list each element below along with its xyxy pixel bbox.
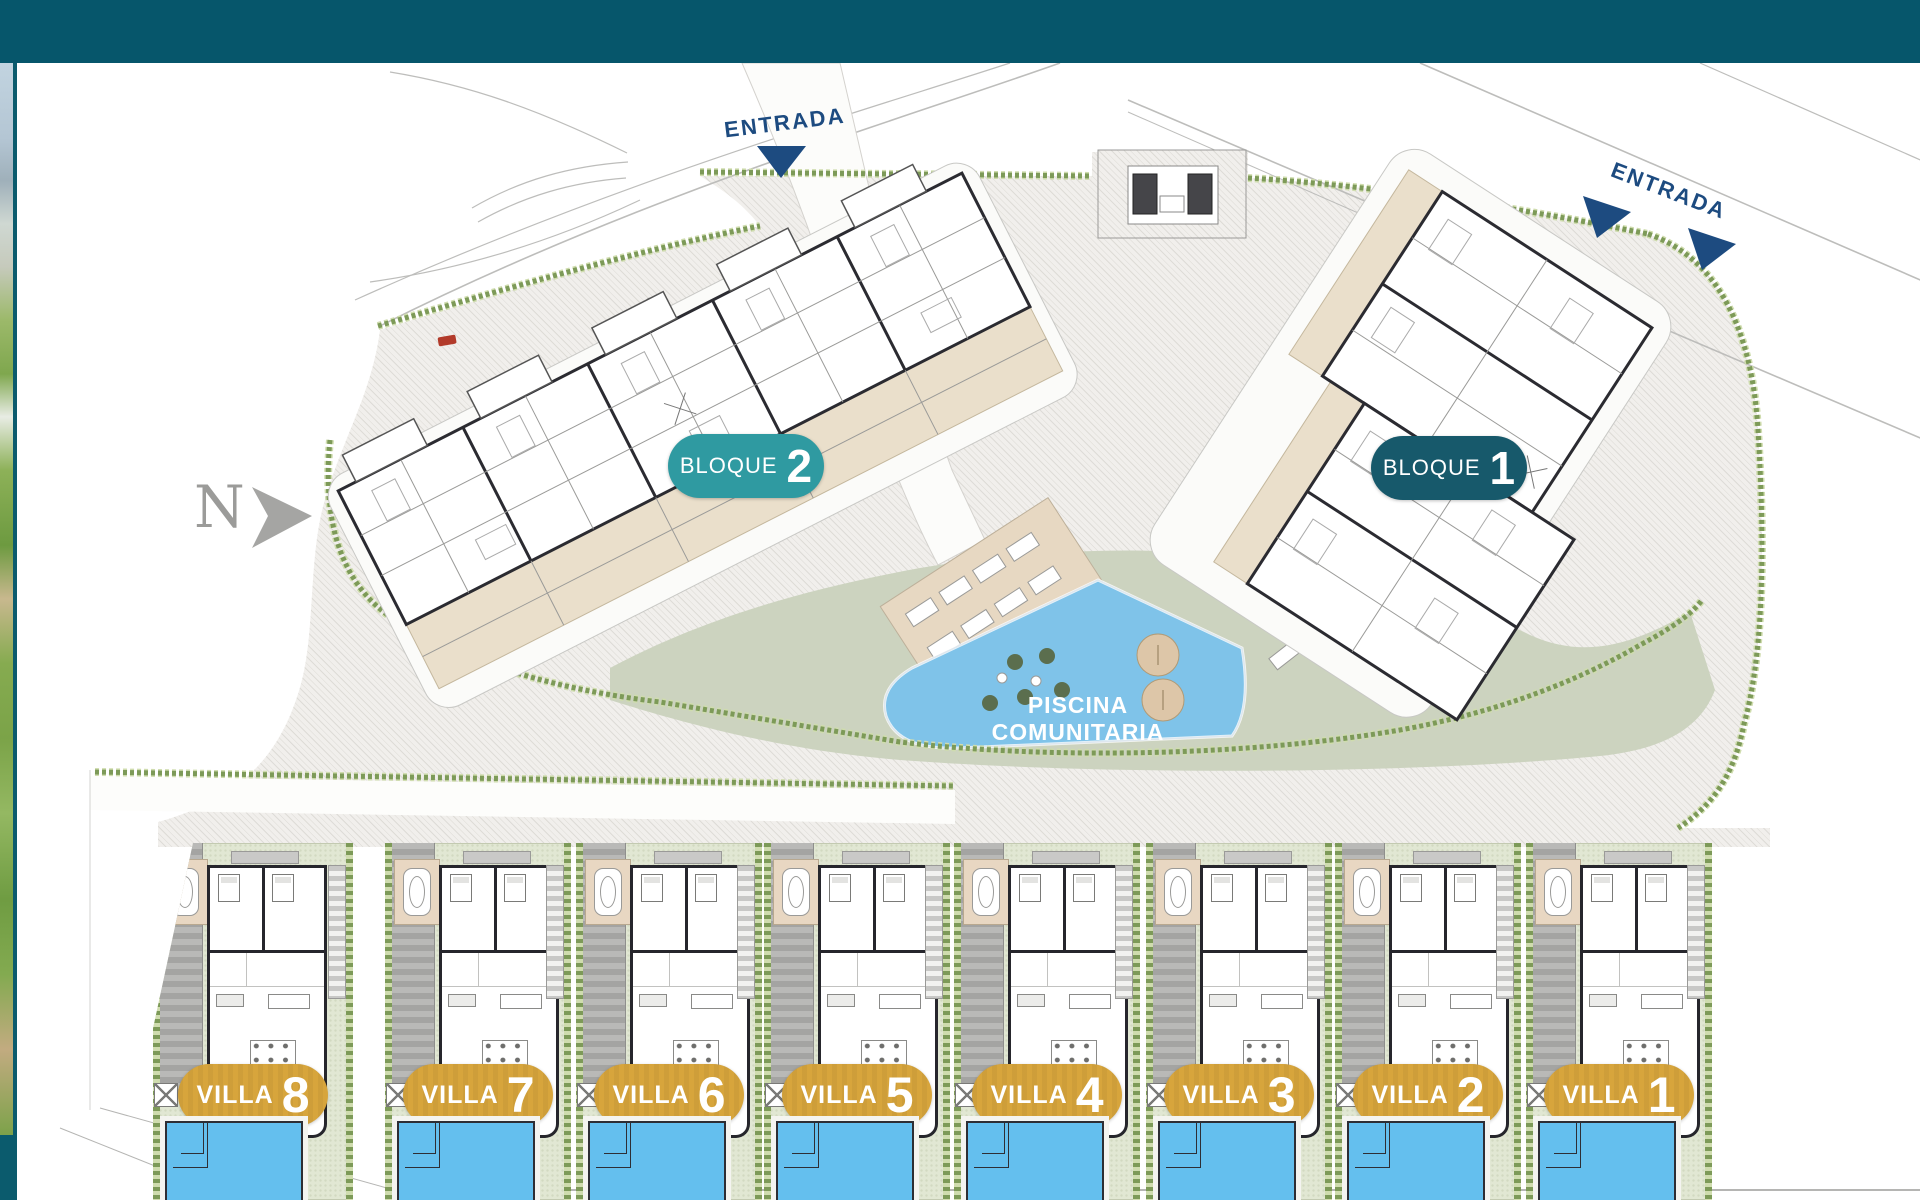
- outdoor-tub: [403, 868, 431, 916]
- wall: [1011, 950, 1125, 953]
- villa-pool: [1347, 1121, 1485, 1200]
- terrace-sofa: [463, 851, 531, 864]
- wall: [1444, 868, 1447, 950]
- partition-line: [1203, 986, 1317, 987]
- partition-line: [1392, 986, 1506, 987]
- outdoor-tub: [1164, 868, 1192, 916]
- villa-pool: [1158, 1121, 1296, 1200]
- outdoor-tub: [782, 868, 810, 916]
- kitchen-island-icon: [500, 994, 542, 1009]
- partition-line: [857, 953, 858, 987]
- bed-icon: [1454, 874, 1476, 902]
- villa-number: 8: [282, 1070, 310, 1120]
- side-steps: [546, 865, 564, 999]
- hedge-divider-left: [954, 843, 961, 1200]
- bloque-2-number: 2: [787, 443, 813, 489]
- bed-icon: [829, 874, 851, 902]
- wall: [210, 950, 324, 953]
- terrace-sofa: [1413, 851, 1481, 864]
- bloque-1-number: 1: [1490, 445, 1516, 491]
- villa-plot-3: VILLA 3: [1146, 843, 1332, 1200]
- hedge-divider-left: [576, 843, 583, 1200]
- sofa-icon: [639, 994, 667, 1007]
- hedge-divider-right: [755, 843, 762, 1200]
- sofa-icon: [1209, 994, 1237, 1007]
- villa-badge-7[interactable]: VILLA 7: [403, 1064, 553, 1126]
- hedge-divider-left: [1146, 843, 1153, 1200]
- hedge-divider-left: [385, 843, 392, 1200]
- hedge-divider-left: [1526, 843, 1533, 1200]
- hedge-divider-right: [564, 843, 571, 1200]
- hedge-divider-right: [346, 843, 353, 1200]
- partition-line: [1583, 986, 1697, 987]
- sofa-icon: [216, 994, 244, 1007]
- top-header-band: [0, 0, 1920, 63]
- outdoor-tub: [1353, 868, 1381, 916]
- sofa-icon: [1589, 994, 1617, 1007]
- kitchen-island-icon: [268, 994, 310, 1009]
- partition-line: [1619, 953, 1620, 987]
- sofa-icon: [448, 994, 476, 1007]
- bed-icon: [641, 874, 663, 902]
- villa-badge-8[interactable]: VILLA 8: [178, 1064, 328, 1126]
- villa-badge-2[interactable]: VILLA 2: [1353, 1064, 1503, 1126]
- villa-label: VILLA: [612, 1081, 689, 1110]
- side-steps: [328, 865, 346, 999]
- wall: [1635, 868, 1638, 950]
- wall: [1063, 868, 1066, 950]
- wall: [633, 950, 747, 953]
- bed-icon: [450, 874, 472, 902]
- terrace-sofa: [1604, 851, 1672, 864]
- communal-pool-label: PISCINA COMUNITARIA: [950, 692, 1206, 746]
- villa-number: 6: [698, 1070, 726, 1120]
- bed-icon: [1073, 874, 1095, 902]
- villa-pool: [966, 1121, 1104, 1200]
- side-steps: [1496, 865, 1514, 999]
- villa-pool: [397, 1121, 535, 1200]
- villa-number: 1: [1648, 1070, 1676, 1120]
- sofa-icon: [1017, 994, 1045, 1007]
- wall: [1255, 868, 1258, 950]
- villa-entry-porch: [1535, 859, 1581, 925]
- terrace-sofa: [1032, 851, 1100, 864]
- villa-pool: [776, 1121, 914, 1200]
- villa-entry-porch: [1155, 859, 1201, 925]
- hedge-divider-right: [1325, 843, 1332, 1200]
- villa-pool: [588, 1121, 726, 1200]
- villa-label: VILLA: [421, 1081, 498, 1110]
- villa-label: VILLA: [800, 1081, 877, 1110]
- villa-label: VILLA: [1182, 1081, 1259, 1110]
- side-steps: [1115, 865, 1133, 999]
- wall: [1583, 950, 1697, 953]
- villa-floorplan: [818, 865, 938, 1087]
- villa-badge-6[interactable]: VILLA 6: [594, 1064, 744, 1126]
- wall: [1203, 950, 1317, 953]
- partition-line: [1239, 953, 1240, 987]
- outdoor-tub: [972, 868, 1000, 916]
- hedge-divider-right: [1705, 843, 1712, 1200]
- villa-entry-porch: [1344, 859, 1390, 925]
- villa-badge-1[interactable]: VILLA 1: [1544, 1064, 1694, 1126]
- villa-entry-porch: [963, 859, 1009, 925]
- partition-line: [1047, 953, 1048, 987]
- bed-icon: [504, 874, 526, 902]
- sofa-icon: [827, 994, 855, 1007]
- wall: [685, 868, 688, 950]
- kitchen-island-icon: [1641, 994, 1683, 1009]
- wall: [1392, 950, 1506, 953]
- kitchen-island-icon: [691, 994, 733, 1009]
- partition-line: [821, 986, 935, 987]
- villa-plot-5: VILLA 5: [764, 843, 950, 1200]
- terrace-sofa: [842, 851, 910, 864]
- partition-line: [478, 953, 479, 987]
- villa-label: VILLA: [196, 1081, 273, 1110]
- partition-line: [442, 986, 556, 987]
- villa-plot-6: VILLA 6: [576, 843, 762, 1200]
- villa-floorplan: [1580, 865, 1700, 1087]
- villa-number: 7: [507, 1070, 535, 1120]
- kitchen-island-icon: [1069, 994, 1111, 1009]
- partition-line: [669, 953, 670, 987]
- villa-entry-porch: [773, 859, 819, 925]
- hedge-divider-right: [943, 843, 950, 1200]
- site-plan-page: ENTRADA ENTRADA N BLOQUE 2 BLOQUE 1 PISC…: [0, 0, 1920, 1200]
- wall: [873, 868, 876, 950]
- wall: [442, 950, 556, 953]
- bed-icon: [1645, 874, 1667, 902]
- bloque-1-badge[interactable]: BLOQUE 1: [1371, 436, 1527, 500]
- villa-badge-5[interactable]: VILLA 5: [782, 1064, 932, 1126]
- villa-number: 4: [1076, 1070, 1104, 1120]
- villa-plot-1: VILLA 1: [1526, 843, 1712, 1200]
- outdoor-tub: [1544, 868, 1572, 916]
- villa-plot-4: VILLA 4: [954, 843, 1140, 1200]
- villa-floorplan: [1008, 865, 1128, 1087]
- bloque-2-label: BLOQUE: [680, 453, 778, 479]
- bed-icon: [1211, 874, 1233, 902]
- bed-icon: [218, 874, 240, 902]
- community-structure: [1098, 150, 1246, 238]
- villa-plot-7: VILLA 7: [385, 843, 571, 1200]
- bloque-2-badge[interactable]: BLOQUE 2: [668, 434, 824, 498]
- hedge-divider-right: [1514, 843, 1521, 1200]
- side-steps: [1307, 865, 1325, 999]
- north-indicator: N: [194, 478, 245, 536]
- kitchen-island-icon: [1450, 994, 1492, 1009]
- hedge-divider-left: [764, 843, 771, 1200]
- villa-floorplan: [207, 865, 327, 1087]
- partition-line: [633, 986, 747, 987]
- partition-line: [246, 953, 247, 987]
- villa-floorplan: [1200, 865, 1320, 1087]
- villa-badge-4[interactable]: VILLA 4: [972, 1064, 1122, 1126]
- bloque-1-label: BLOQUE: [1383, 455, 1481, 481]
- villa-label: VILLA: [990, 1081, 1067, 1110]
- outdoor-tub: [594, 868, 622, 916]
- side-steps: [737, 865, 755, 999]
- side-steps: [1687, 865, 1705, 999]
- wall: [494, 868, 497, 950]
- villa-label: VILLA: [1562, 1081, 1639, 1110]
- bed-icon: [272, 874, 294, 902]
- villa-label: VILLA: [1371, 1081, 1448, 1110]
- bed-icon: [1265, 874, 1287, 902]
- villa-floorplan: [630, 865, 750, 1087]
- bottom-left-corner-band: [0, 1135, 13, 1200]
- villa-entry-porch: [394, 859, 440, 925]
- villa-plot-2: VILLA 2: [1335, 843, 1521, 1200]
- villa-floorplan: [1389, 865, 1509, 1087]
- sofa-icon: [1398, 994, 1426, 1007]
- kitchen-island-icon: [1261, 994, 1303, 1009]
- outdoor-shower-icon: [154, 1083, 178, 1107]
- villa-badge-3[interactable]: VILLA 3: [1164, 1064, 1314, 1126]
- north-arrow-icon: [252, 487, 312, 548]
- terrace-sofa: [1224, 851, 1292, 864]
- bed-icon: [695, 874, 717, 902]
- villa-floorplan: [439, 865, 559, 1087]
- wall: [262, 868, 265, 950]
- villa-number: 5: [886, 1070, 914, 1120]
- wall: [821, 950, 935, 953]
- hedge-divider-left: [1335, 843, 1342, 1200]
- left-photo-strip: [0, 63, 13, 1135]
- villa-entry-porch: [585, 859, 631, 925]
- villa-plot-8: VILLA 8: [153, 843, 353, 1200]
- kitchen-island-icon: [879, 994, 921, 1009]
- bed-icon: [1591, 874, 1613, 902]
- villa-number: 3: [1268, 1070, 1296, 1120]
- villa-number: 2: [1457, 1070, 1485, 1120]
- bed-icon: [883, 874, 905, 902]
- bed-icon: [1400, 874, 1422, 902]
- terrace-sofa: [654, 851, 722, 864]
- terrace-sofa: [231, 851, 299, 864]
- left-divider-rule: [13, 63, 17, 1200]
- bed-icon: [1019, 874, 1041, 902]
- villa-pool: [1538, 1121, 1676, 1200]
- partition-line: [1011, 986, 1125, 987]
- partition-line: [210, 986, 324, 987]
- hedge-divider-right: [1133, 843, 1140, 1200]
- villa-pool: [165, 1121, 303, 1200]
- side-steps: [925, 865, 943, 999]
- partition-line: [1428, 953, 1429, 987]
